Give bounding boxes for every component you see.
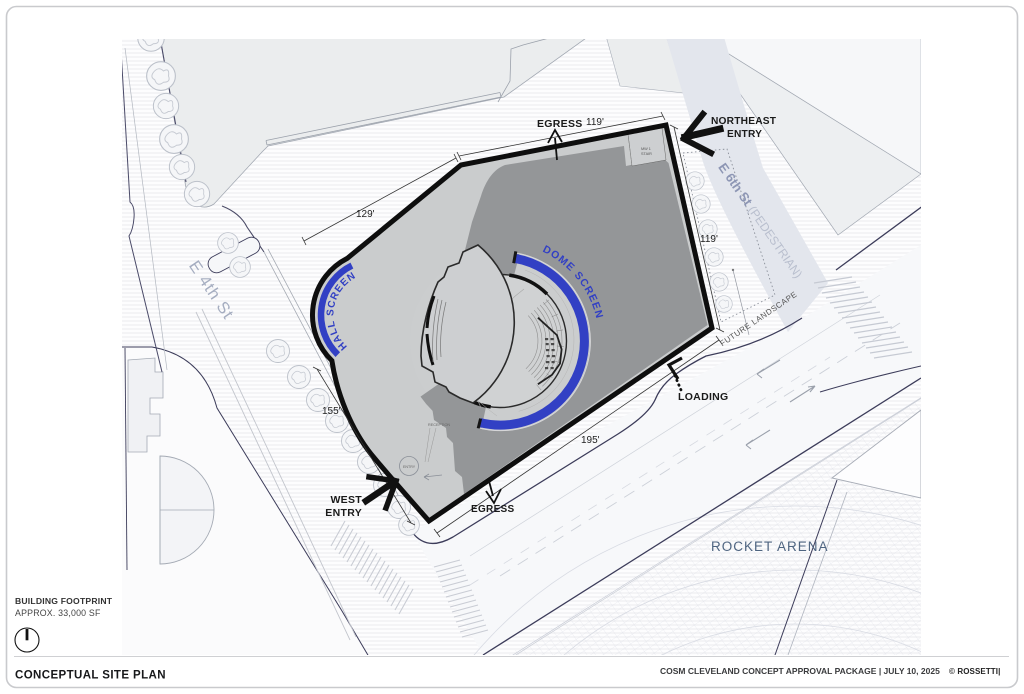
svg-text:BUILDING FOOTPRINT: BUILDING FOOTPRINT <box>15 596 113 606</box>
svg-text:119': 119' <box>700 234 718 245</box>
svg-text:STAIR: STAIR <box>641 152 652 156</box>
svg-text:MW 1: MW 1 <box>641 147 651 151</box>
svg-text:APPROX. 33,000 SF: APPROX. 33,000 SF <box>15 608 101 618</box>
svg-text:RECEPTION: RECEPTION <box>428 423 450 427</box>
svg-text:ENTRY: ENTRY <box>325 507 362 519</box>
svg-text:155': 155' <box>322 406 341 417</box>
svg-text:195': 195' <box>581 435 600 446</box>
svg-text:EGRESS: EGRESS <box>537 118 583 130</box>
svg-text:ROCKET ARENA: ROCKET ARENA <box>711 539 829 554</box>
svg-text:ENTRY: ENTRY <box>403 465 416 469</box>
svg-text:© ROSSETTI|: © ROSSETTI| <box>949 667 1000 676</box>
svg-text:COSM CLEVELAND CONCEPT APPROVA: COSM CLEVELAND CONCEPT APPROVAL PACKAGE … <box>660 666 940 676</box>
svg-text:ENTRY: ENTRY <box>727 129 762 140</box>
svg-text:129': 129' <box>356 209 375 220</box>
svg-text:119': 119' <box>586 117 604 128</box>
svg-text:WEST: WEST <box>330 494 362 506</box>
svg-text:CONCEPTUAL SITE PLAN: CONCEPTUAL SITE PLAN <box>15 670 166 682</box>
svg-text:LOADING: LOADING <box>678 391 729 403</box>
svg-text:EGRESS: EGRESS <box>471 504 515 515</box>
